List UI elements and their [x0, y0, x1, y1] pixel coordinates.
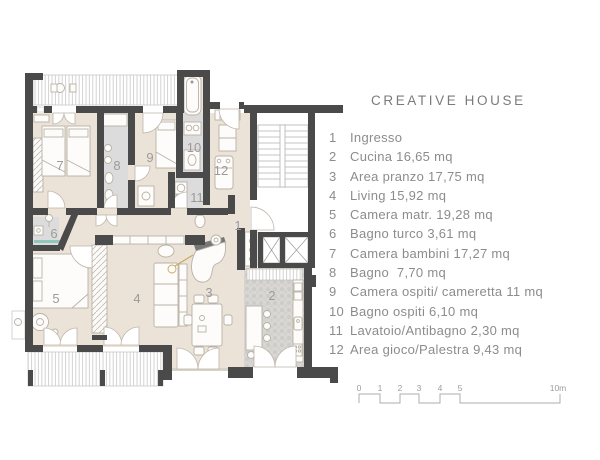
- scale-tick-10m: 10m: [550, 383, 567, 393]
- legend-item-label: Area pranzo 17,75 mq: [350, 167, 485, 186]
- toilet: [105, 173, 113, 184]
- scale-tick-3: 3: [417, 383, 422, 393]
- legend-item-number: 10: [329, 302, 350, 321]
- legend-item-label: Lavatoio/Antibagno 2,30 mq: [350, 321, 520, 340]
- legend-item-number: 9: [329, 282, 350, 301]
- legend-item-number: 5: [329, 205, 350, 224]
- kitchen-counter: [247, 269, 302, 280]
- legend-item-label: Camera matr. 19,28 mq: [350, 205, 493, 224]
- floorplan-page: 1 2 3 4 5 6 7 8 9 10 11 12 0 1 2 3 4 5 1…: [0, 0, 600, 460]
- legend-item-8: 8Bagno 7,70 mq: [329, 263, 600, 282]
- scale-bar: 0 1 2 3 4 5 10m: [357, 383, 567, 403]
- dining-table: [192, 304, 222, 346]
- legend-item-7: 7Camera bambini 17,27 mq: [329, 244, 600, 263]
- kitchen-island: [246, 306, 262, 350]
- room-label-8: 8: [113, 158, 120, 173]
- steam-shower: [46, 215, 53, 222]
- room-label-9: 9: [146, 150, 153, 165]
- page-title: CREATIVE HOUSE: [371, 93, 526, 108]
- legend-item-number: 2: [329, 147, 350, 166]
- legend-item-label: Cucina 16,65 mq: [350, 147, 453, 166]
- legend-item-6: 6Bagno turco 3,61 mq: [329, 224, 600, 243]
- room-label-7: 7: [56, 158, 63, 173]
- room-label-12: 12: [214, 163, 228, 178]
- legend-item-label: Bagno turco 3,61 mq: [350, 224, 476, 243]
- legend-item-1: 1Ingresso: [329, 128, 600, 147]
- scale-tick-2: 2: [398, 383, 403, 393]
- legend-item-number: 3: [329, 167, 350, 186]
- legend-item-number: 1: [329, 128, 350, 147]
- scale-tick-1: 1: [378, 383, 383, 393]
- legend-item-label: Bagno ospiti 6,10 mq: [350, 302, 478, 321]
- legend-item-number: 12: [329, 340, 350, 359]
- scale-bar-line: [359, 394, 560, 403]
- legend-item-11: 11Lavatoio/Antibagno 2,30 mq: [329, 321, 600, 340]
- legend-item-4: 4Living 15,92 mq: [329, 186, 600, 205]
- legend-item-2: 2Cucina 16,65 mq: [329, 147, 600, 166]
- legend-list: 1Ingresso 2Cucina 16,65 mq 3Area pranzo …: [329, 128, 600, 360]
- legend-item-number: 4: [329, 186, 350, 205]
- scale-tick-4: 4: [438, 383, 443, 393]
- legend-item-label: Camera bambini 17,27 mq: [350, 244, 510, 263]
- balcony-bottom: [28, 352, 163, 386]
- room-label-2: 2: [268, 288, 275, 303]
- legend: 1Ingresso 2Cucina 16,65 mq 3Area pranzo …: [329, 128, 600, 360]
- legend-item-label: Camera ospiti/ cameretta 11 mq: [350, 282, 543, 301]
- room-label-10: 10: [187, 140, 201, 155]
- room-label-11: 11: [190, 190, 204, 205]
- elevators: [263, 237, 308, 263]
- legend-item-5: 5Camera matr. 19,28 mq: [329, 205, 600, 224]
- legend-item-number: 11: [329, 321, 350, 340]
- legend-item-3: 3Area pranzo 17,75 mq: [329, 167, 600, 186]
- legend-item-label: Bagno 7,70 mq: [350, 263, 446, 282]
- legend-item-label: Living 15,92 mq: [350, 186, 446, 205]
- legend-item-label: Ingresso: [350, 128, 402, 147]
- legend-item-label: Area gioco/Palestra 9,43 mq: [350, 340, 522, 359]
- legend-item-number: 8: [329, 263, 350, 282]
- kitchen-sink: [294, 317, 302, 330]
- room-label-6: 6: [50, 226, 57, 241]
- room-label-3: 3: [205, 285, 212, 300]
- legend-item-10: 10Bagno ospiti 6,10 mq: [329, 302, 600, 321]
- legend-item-number: 7: [329, 244, 350, 263]
- shower: [101, 114, 127, 126]
- room-label-4: 4: [133, 291, 140, 306]
- scale-tick-0: 0: [357, 383, 362, 393]
- legend-item-number: 6: [329, 224, 350, 243]
- teal-bench: [34, 240, 62, 243]
- room-label-1: 1: [234, 218, 241, 233]
- scale-tick-5: 5: [458, 383, 463, 393]
- wardrobe: [92, 245, 107, 333]
- closet: [33, 138, 43, 192]
- legend-item-12: 12Area gioco/Palestra 9,43 mq: [329, 340, 600, 359]
- room-label-5: 5: [52, 291, 59, 306]
- legend-item-9: 9Camera ospiti/ cameretta 11 mq: [329, 282, 600, 301]
- desk: [34, 115, 49, 122]
- staircase: [258, 125, 308, 187]
